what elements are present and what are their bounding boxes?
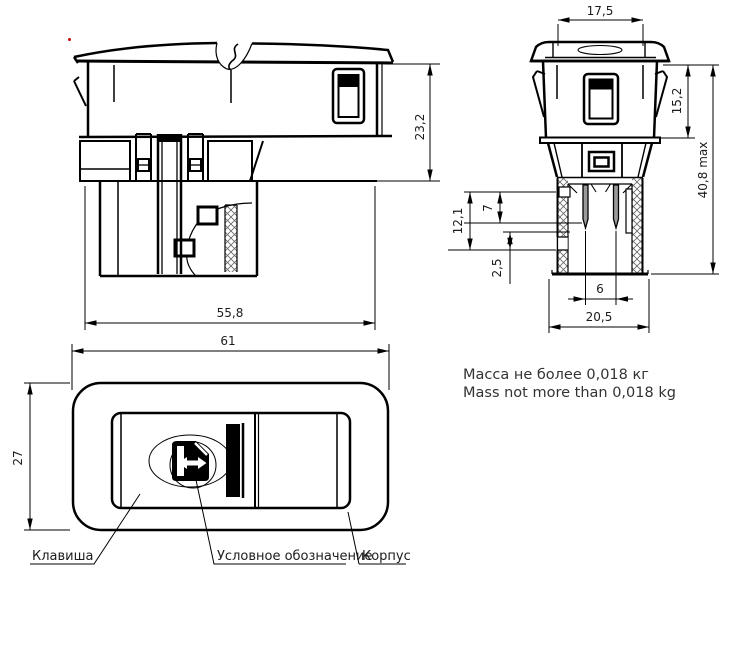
dim-front-pin-length: 7 (481, 204, 495, 212)
face-view (73, 383, 388, 530)
side-view-dimensions (85, 64, 440, 330)
callout-housing: Корпус (362, 549, 411, 564)
front-view (531, 42, 669, 274)
mass-note-en: Mass not more than 0,018 kg (463, 384, 676, 402)
terminal-tab (198, 207, 217, 224)
dim-front-total-height: 40,8 max (696, 142, 710, 199)
technical-drawing: 23,2 55,8 (0, 0, 729, 655)
cutaway-hatch (225, 205, 237, 272)
dim-front-connector-depth: 12,1 (451, 208, 465, 235)
dim-front-upper-height: 15,2 (670, 88, 684, 115)
callout-key: Клавиша (32, 549, 93, 564)
dim-front-chamfer: 2,5 (490, 258, 504, 277)
dim-face-height: 27 (11, 450, 25, 465)
dim-front-connector-width: 20,5 (586, 310, 613, 324)
drawing-page: 23,2 55,8 (0, 0, 729, 655)
red-marker-dot (68, 38, 71, 41)
dim-side-width: 55,8 (217, 306, 244, 320)
dim-front-top-width: 17,5 (587, 4, 614, 18)
terminal-tab (175, 240, 194, 256)
mass-note: Масса не более 0,018 кг Mass not more th… (463, 366, 676, 402)
dim-front-pin-pitch: 6 (596, 282, 604, 296)
grip-ribs (226, 424, 240, 497)
callout-symbol: Условное обозначение (217, 549, 373, 564)
dim-side-height: 23,2 (413, 114, 427, 141)
front-view-dimensions (448, 20, 719, 333)
connector-pin (614, 185, 619, 228)
connector-pin (583, 185, 588, 228)
mass-note-ru: Масса не более 0,018 кг (463, 366, 676, 384)
side-view (74, 43, 393, 276)
dim-face-width: 61 (220, 334, 235, 348)
